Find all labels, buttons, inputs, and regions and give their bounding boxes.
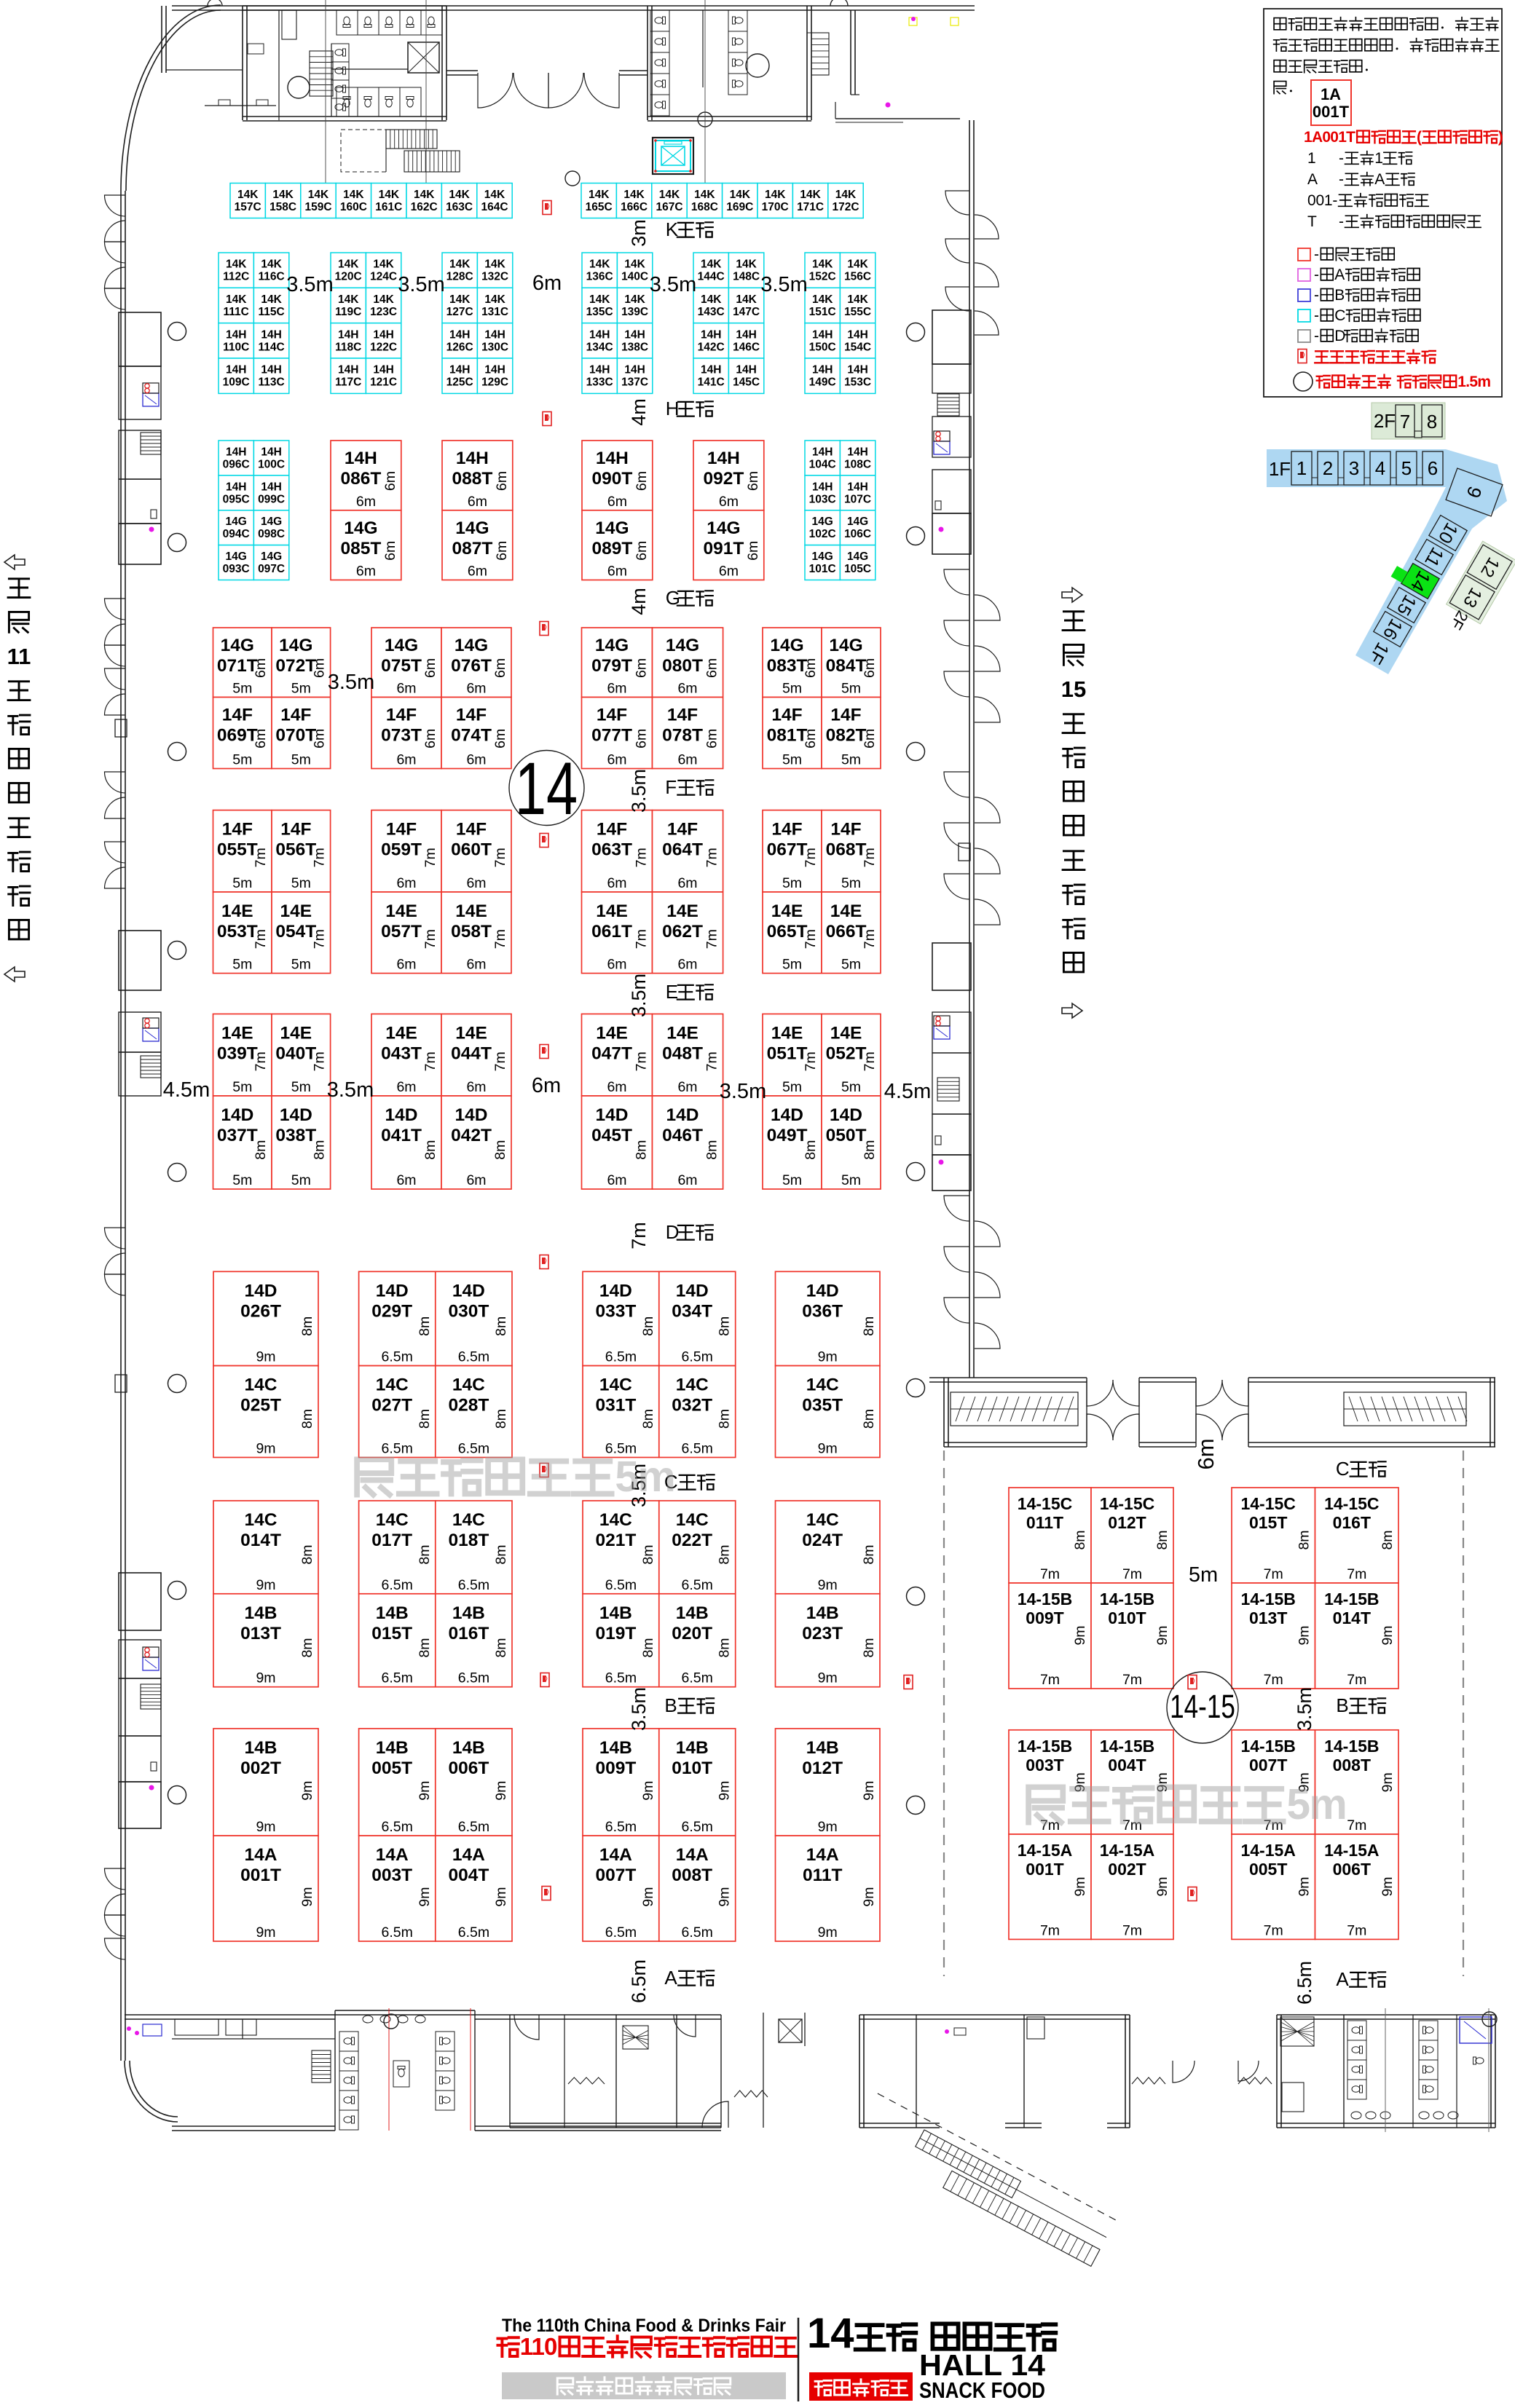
- svg-text:6m: 6m: [532, 272, 562, 295]
- svg-text:8m: 8m: [704, 1140, 720, 1160]
- svg-text:008T: 008T: [1333, 1756, 1371, 1775]
- svg-text:025T: 025T: [240, 1396, 281, 1416]
- svg-text:143C: 143C: [698, 306, 725, 318]
- svg-text:7m: 7m: [253, 929, 269, 949]
- svg-text:115C: 115C: [258, 306, 284, 318]
- svg-text:023T: 023T: [802, 1624, 843, 1643]
- svg-text:6m: 6m: [1193, 1438, 1219, 1469]
- svg-text:8m: 8m: [493, 1545, 509, 1565]
- svg-text:6m: 6m: [677, 1172, 697, 1188]
- svg-text:14D: 14D: [455, 1105, 488, 1125]
- svg-text:6m: 6m: [466, 957, 486, 973]
- svg-text:049T: 049T: [767, 1126, 808, 1145]
- svg-text:111C: 111C: [224, 306, 249, 318]
- svg-text:114C: 114C: [258, 341, 284, 353]
- svg-text:146C: 146C: [733, 341, 760, 353]
- svg-text:5m: 5m: [782, 752, 802, 768]
- svg-text:14F: 14F: [830, 820, 861, 840]
- svg-text:14G: 14G: [595, 636, 629, 655]
- svg-text:14E: 14E: [666, 1024, 699, 1043]
- svg-text:7m: 7m: [1264, 1672, 1283, 1688]
- svg-text:14E: 14E: [455, 901, 487, 921]
- svg-text:14H: 14H: [596, 449, 629, 468]
- svg-text:14C: 14C: [245, 1510, 278, 1530]
- svg-text:14K: 14K: [765, 189, 786, 201]
- svg-text:6m: 6m: [745, 541, 761, 561]
- svg-text:128C: 128C: [446, 271, 473, 283]
- svg-text:5m: 5m: [232, 752, 252, 768]
- svg-text:14E: 14E: [455, 1024, 487, 1043]
- svg-text:14H: 14H: [589, 364, 610, 376]
- svg-text:14K: 14K: [701, 293, 722, 306]
- svg-text:6.5m: 6.5m: [605, 1577, 637, 1593]
- svg-text:14-15A: 14-15A: [1324, 1841, 1379, 1860]
- svg-text:041T: 041T: [381, 1126, 422, 1145]
- svg-text:14E: 14E: [771, 1024, 803, 1043]
- svg-text:14E: 14E: [221, 901, 253, 921]
- svg-text:117C: 117C: [335, 376, 361, 389]
- svg-text:031T: 031T: [595, 1396, 636, 1416]
- svg-text:14B: 14B: [376, 1738, 409, 1758]
- svg-text:5m: 5m: [291, 681, 311, 697]
- svg-text:121C: 121C: [370, 376, 397, 389]
- svg-text:A: A: [1374, 171, 1385, 188]
- svg-text:050T: 050T: [826, 1126, 867, 1145]
- svg-text:055T: 055T: [217, 840, 258, 860]
- svg-text:14K: 14K: [589, 258, 610, 271]
- svg-text:7m: 7m: [1264, 1922, 1283, 1938]
- svg-text:086T: 086T: [340, 469, 381, 489]
- svg-text:6m: 6m: [356, 494, 376, 510]
- svg-text:9m: 9m: [1072, 1876, 1088, 1896]
- svg-text:5m: 5m: [232, 681, 252, 697]
- svg-text:9m: 9m: [717, 1887, 733, 1907]
- svg-text:14B: 14B: [806, 1738, 839, 1758]
- svg-text:6.5m: 6.5m: [1294, 1961, 1315, 2005]
- svg-text:9m: 9m: [1296, 1876, 1313, 1896]
- svg-text:14A: 14A: [676, 1845, 709, 1865]
- svg-text:14H: 14H: [456, 449, 489, 468]
- svg-text:5m: 5m: [615, 1453, 676, 1501]
- svg-text:7m: 7m: [1347, 1672, 1366, 1688]
- svg-text:007T: 007T: [595, 1866, 636, 1885]
- svg-text:130C: 130C: [481, 341, 508, 353]
- svg-text:046T: 046T: [662, 1126, 703, 1145]
- svg-text:14H: 14H: [624, 364, 645, 376]
- svg-text:14E: 14E: [596, 901, 628, 921]
- svg-text:012T: 012T: [802, 1758, 843, 1778]
- svg-text:054T: 054T: [275, 922, 316, 942]
- svg-text:14K: 14K: [847, 293, 868, 306]
- svg-text:072T: 072T: [275, 656, 316, 676]
- svg-text:001T: 001T: [240, 1866, 281, 1885]
- svg-text:149C: 149C: [809, 376, 836, 389]
- svg-text:125C: 125C: [446, 376, 473, 389]
- svg-text:8m: 8m: [253, 1140, 269, 1160]
- svg-text:8m: 8m: [417, 1409, 433, 1429]
- svg-text:014T: 014T: [1333, 1608, 1371, 1627]
- svg-text:14C: 14C: [599, 1510, 632, 1530]
- svg-text:8m: 8m: [299, 1316, 315, 1336]
- svg-text:SNACK FOOD: SNACK FOOD: [919, 2377, 1045, 2403]
- svg-text:14B: 14B: [245, 1603, 278, 1623]
- svg-text:14G: 14G: [279, 636, 312, 655]
- svg-text:137C: 137C: [621, 376, 648, 389]
- svg-text:14H: 14H: [812, 328, 833, 341]
- svg-text:5m: 5m: [232, 1172, 252, 1188]
- svg-text:8m: 8m: [1296, 1530, 1313, 1550]
- svg-text:6m: 6m: [607, 494, 627, 510]
- svg-text:8m: 8m: [312, 1140, 328, 1160]
- svg-text:8m: 8m: [717, 1409, 733, 1429]
- svg-text:14K: 14K: [484, 189, 505, 201]
- svg-text:A: A: [664, 1967, 677, 1989]
- svg-text:5m: 5m: [782, 1172, 802, 1188]
- svg-text:14B: 14B: [676, 1738, 709, 1758]
- svg-text:8m: 8m: [861, 1316, 877, 1336]
- svg-text:14A: 14A: [599, 1845, 632, 1865]
- svg-text:9m: 9m: [861, 1781, 877, 1801]
- svg-text:14-15B: 14-15B: [1018, 1590, 1072, 1608]
- svg-text:14H: 14H: [261, 364, 281, 376]
- svg-text:136C: 136C: [586, 271, 613, 283]
- svg-text:6m: 6m: [607, 875, 626, 891]
- svg-text:8m: 8m: [640, 1409, 656, 1429]
- svg-text:6.5m: 6.5m: [382, 1819, 413, 1835]
- svg-text:14-15C: 14-15C: [1100, 1494, 1154, 1513]
- svg-text:14G: 14G: [344, 518, 377, 538]
- svg-text:8m: 8m: [493, 1638, 509, 1657]
- svg-text:14K: 14K: [261, 293, 282, 306]
- svg-text:8m: 8m: [422, 1140, 438, 1160]
- svg-text:7m: 7m: [1264, 1566, 1283, 1582]
- svg-text:14E: 14E: [221, 1024, 253, 1043]
- svg-text:7m: 7m: [803, 848, 819, 867]
- svg-text:133C: 133C: [586, 376, 613, 389]
- svg-text:020T: 020T: [672, 1624, 712, 1643]
- svg-text:7m: 7m: [704, 1051, 720, 1071]
- svg-text:14K: 14K: [226, 258, 247, 271]
- svg-text:14K: 14K: [589, 189, 610, 201]
- svg-text:027T: 027T: [371, 1396, 412, 1416]
- svg-text:7m: 7m: [1122, 1566, 1142, 1582]
- svg-text:103C: 103C: [809, 493, 836, 505]
- svg-text:071T: 071T: [217, 656, 258, 676]
- svg-text:017T: 017T: [371, 1531, 412, 1550]
- svg-text:004T: 004T: [1108, 1756, 1146, 1775]
- svg-text:033T: 033T: [595, 1301, 636, 1321]
- svg-text:085T: 085T: [340, 539, 381, 558]
- svg-text:14B: 14B: [599, 1603, 632, 1623]
- svg-text:8m: 8m: [640, 1316, 656, 1336]
- svg-text:1: 1: [1307, 150, 1316, 167]
- svg-text:14K: 14K: [373, 258, 394, 271]
- svg-text:14D: 14D: [599, 1281, 632, 1300]
- svg-text:5m: 5m: [841, 681, 861, 697]
- svg-text:6.5m: 6.5m: [605, 1819, 637, 1835]
- svg-text:056T: 056T: [275, 840, 316, 860]
- svg-text:7m: 7m: [704, 848, 720, 867]
- svg-text:016T: 016T: [448, 1624, 489, 1643]
- svg-text:163C: 163C: [446, 201, 473, 213]
- svg-text:14-15B: 14-15B: [1324, 1737, 1379, 1756]
- svg-text:075T: 075T: [381, 656, 422, 676]
- svg-text:094C: 094C: [223, 528, 250, 540]
- svg-text:14G: 14G: [261, 550, 282, 563]
- svg-text:14D: 14D: [676, 1281, 709, 1300]
- svg-text:011T: 011T: [803, 1866, 843, 1885]
- svg-text:14F: 14F: [597, 706, 627, 725]
- svg-text:8m: 8m: [717, 1316, 733, 1336]
- svg-text:5m: 5m: [782, 1079, 802, 1095]
- svg-text:9m: 9m: [1154, 1876, 1170, 1896]
- svg-text:14K: 14K: [484, 258, 505, 271]
- svg-text:171C: 171C: [797, 201, 824, 213]
- svg-text:14B: 14B: [452, 1603, 485, 1623]
- svg-text:14F: 14F: [386, 706, 417, 725]
- svg-text:14D: 14D: [245, 1281, 278, 1300]
- svg-text:053T: 053T: [217, 922, 258, 942]
- svg-text:098C: 098C: [258, 528, 285, 540]
- svg-text:14G: 14G: [455, 518, 489, 538]
- svg-text:8m: 8m: [640, 1638, 656, 1657]
- svg-text:5m: 5m: [841, 1172, 861, 1188]
- svg-text:14F: 14F: [771, 706, 802, 725]
- svg-text:6m: 6m: [634, 471, 650, 491]
- svg-text:6.5m: 6.5m: [458, 1441, 489, 1457]
- svg-text:14H: 14H: [847, 481, 867, 493]
- svg-text:6m: 6m: [745, 471, 761, 491]
- svg-text:14K: 14K: [449, 293, 471, 306]
- svg-text:8m: 8m: [1072, 1530, 1088, 1550]
- svg-text:14D: 14D: [596, 1105, 629, 1125]
- svg-text:14H: 14H: [701, 328, 721, 341]
- svg-text:14C: 14C: [376, 1510, 409, 1530]
- svg-text:6.5m: 6.5m: [382, 1349, 413, 1365]
- svg-text:4.5m: 4.5m: [163, 1078, 210, 1102]
- svg-text:089T: 089T: [591, 539, 632, 558]
- svg-text:024T: 024T: [802, 1531, 843, 1550]
- svg-text:6m: 6m: [607, 564, 627, 580]
- svg-text:A: A: [1307, 171, 1318, 188]
- svg-text:028T: 028T: [448, 1396, 489, 1416]
- svg-text:14H: 14H: [226, 481, 246, 493]
- svg-text:3.5m: 3.5m: [650, 273, 696, 296]
- svg-text:14K: 14K: [338, 258, 359, 271]
- svg-text:-: -: [1339, 150, 1344, 167]
- svg-text:5: 5: [1401, 457, 1412, 479]
- svg-text:012T: 012T: [1108, 1513, 1146, 1532]
- svg-text:6.5m: 6.5m: [682, 1819, 713, 1835]
- svg-text:14D: 14D: [666, 1105, 699, 1125]
- svg-text:138C: 138C: [621, 341, 648, 353]
- svg-text:095C: 095C: [223, 493, 250, 505]
- svg-text:-: -: [1314, 328, 1319, 344]
- svg-text:14K: 14K: [730, 189, 751, 201]
- svg-text:9m: 9m: [1072, 1625, 1088, 1645]
- svg-text:6.5m: 6.5m: [382, 1441, 413, 1457]
- svg-text:14H: 14H: [701, 364, 721, 376]
- svg-text:6m: 6m: [634, 541, 650, 561]
- svg-text:7m: 7m: [492, 1051, 508, 1071]
- svg-text:6m: 6m: [466, 1172, 486, 1188]
- svg-text:6m: 6m: [356, 564, 376, 580]
- svg-text:14H: 14H: [261, 481, 281, 493]
- svg-text:14E: 14E: [280, 901, 312, 921]
- svg-text:129C: 129C: [481, 376, 508, 389]
- svg-text:3.5m: 3.5m: [720, 1080, 766, 1103]
- svg-text:040T: 040T: [275, 1044, 316, 1064]
- svg-text:6.5m: 6.5m: [605, 1349, 637, 1365]
- svg-text:048T: 048T: [662, 1044, 703, 1064]
- svg-text:14G: 14G: [812, 516, 833, 528]
- svg-text:7m: 7m: [1040, 1566, 1060, 1582]
- svg-text:5m: 5m: [841, 875, 861, 891]
- svg-text:087T: 087T: [452, 539, 492, 558]
- svg-text:077T: 077T: [591, 726, 632, 746]
- svg-text:14E: 14E: [666, 901, 699, 921]
- svg-text:5m: 5m: [291, 957, 311, 973]
- svg-text:7m: 7m: [1347, 1922, 1366, 1938]
- svg-text:3.5m: 3.5m: [628, 1687, 650, 1731]
- svg-text:142C: 142C: [698, 341, 725, 353]
- svg-text:14B: 14B: [806, 1603, 839, 1623]
- svg-text:7m: 7m: [1040, 1672, 1060, 1688]
- svg-text:006T: 006T: [448, 1758, 489, 1778]
- svg-text:6.5m: 6.5m: [458, 1819, 489, 1835]
- svg-text:172C: 172C: [832, 201, 859, 213]
- svg-text:9m: 9m: [256, 1349, 275, 1365]
- svg-text:7m: 7m: [253, 848, 269, 867]
- svg-text:6m: 6m: [719, 564, 739, 580]
- svg-text:14F: 14F: [771, 820, 802, 840]
- svg-text:007T: 007T: [1249, 1756, 1287, 1775]
- svg-text:14G: 14G: [707, 518, 740, 538]
- svg-text:14K: 14K: [449, 258, 471, 271]
- svg-text:9m: 9m: [818, 1925, 838, 1941]
- svg-text:14H: 14H: [226, 364, 246, 376]
- svg-text:9m: 9m: [1380, 1876, 1396, 1896]
- svg-text:5m: 5m: [1286, 1780, 1347, 1828]
- svg-text:14G: 14G: [847, 550, 868, 563]
- svg-text:6m: 6m: [396, 752, 416, 768]
- svg-text:11: 11: [7, 644, 31, 669]
- svg-text:6m: 6m: [396, 875, 416, 891]
- svg-text:14G: 14G: [226, 550, 247, 563]
- svg-text:6.5m: 6.5m: [605, 1925, 637, 1941]
- svg-text:14G: 14G: [829, 636, 862, 655]
- svg-text:14A: 14A: [806, 1845, 839, 1865]
- svg-text:126C: 126C: [446, 341, 473, 353]
- svg-text:14K: 14K: [812, 293, 833, 306]
- svg-text:14K: 14K: [414, 189, 435, 201]
- svg-text:078T: 078T: [662, 726, 703, 746]
- svg-text:14-15A: 14-15A: [1240, 1841, 1295, 1860]
- svg-text:7m: 7m: [862, 848, 878, 867]
- svg-text:084T: 084T: [826, 656, 867, 676]
- svg-text:147C: 147C: [733, 306, 760, 318]
- svg-text:9m: 9m: [256, 1577, 275, 1593]
- svg-text:8m: 8m: [861, 1545, 877, 1565]
- svg-text:14G: 14G: [595, 518, 629, 538]
- svg-text:14K: 14K: [237, 189, 259, 201]
- svg-text:14H: 14H: [449, 328, 470, 341]
- svg-text:106C: 106C: [844, 528, 871, 540]
- svg-text:153C: 153C: [844, 376, 871, 389]
- svg-text:7m: 7m: [634, 1051, 650, 1071]
- svg-text:4: 4: [1375, 457, 1385, 479]
- svg-text:127C: 127C: [446, 306, 473, 318]
- svg-text:14K: 14K: [800, 189, 821, 201]
- svg-text:001T: 001T: [1313, 103, 1350, 121]
- svg-text:14C: 14C: [245, 1375, 278, 1395]
- svg-text:073T: 073T: [381, 726, 422, 746]
- svg-text:168C: 168C: [691, 201, 718, 213]
- svg-text:6m: 6m: [468, 494, 487, 510]
- svg-text:3.5m: 3.5m: [286, 273, 333, 296]
- svg-text:14C: 14C: [676, 1510, 709, 1530]
- svg-text:039T: 039T: [217, 1044, 258, 1064]
- svg-text:14C: 14C: [452, 1375, 485, 1395]
- svg-text:14F: 14F: [222, 706, 253, 725]
- svg-text:14H: 14H: [812, 364, 833, 376]
- svg-text:14H: 14H: [484, 328, 505, 341]
- svg-text:14K: 14K: [736, 293, 757, 306]
- svg-text:043T: 043T: [381, 1044, 422, 1064]
- svg-text:9m: 9m: [1380, 1772, 1396, 1792]
- svg-text:058T: 058T: [451, 922, 492, 942]
- svg-text:9m: 9m: [818, 1819, 838, 1835]
- svg-text:8: 8: [1427, 411, 1437, 433]
- svg-text:156C: 156C: [844, 271, 871, 283]
- svg-text:001T: 001T: [1026, 1860, 1063, 1879]
- svg-text:14H: 14H: [707, 449, 740, 468]
- svg-text:F: F: [665, 776, 677, 798]
- svg-text:14H: 14H: [589, 328, 610, 341]
- svg-text:5m: 5m: [782, 681, 802, 697]
- svg-text:064T: 064T: [662, 840, 703, 860]
- svg-text:14H: 14H: [484, 364, 505, 376]
- svg-text:9m: 9m: [493, 1781, 509, 1801]
- svg-text:6m: 6m: [492, 658, 508, 678]
- svg-text:14K: 14K: [338, 293, 359, 306]
- svg-text:097C: 097C: [258, 563, 285, 575]
- svg-text:14E: 14E: [830, 1024, 862, 1043]
- svg-text:7m: 7m: [312, 929, 328, 949]
- svg-text:14-15A: 14-15A: [1018, 1841, 1072, 1860]
- svg-text:7m: 7m: [312, 1051, 328, 1071]
- svg-text:5m: 5m: [782, 957, 802, 973]
- svg-text:14D: 14D: [771, 1105, 803, 1125]
- svg-text:14K: 14K: [226, 293, 247, 306]
- svg-text:6.5m: 6.5m: [458, 1925, 489, 1941]
- svg-text:6: 6: [1428, 457, 1438, 479]
- svg-text:6m: 6m: [422, 658, 438, 678]
- svg-text:165C: 165C: [586, 201, 613, 213]
- svg-text:6m: 6m: [492, 729, 508, 749]
- svg-text:8m: 8m: [299, 1638, 315, 1657]
- svg-text:6m: 6m: [312, 729, 328, 749]
- svg-text:14E: 14E: [596, 1024, 628, 1043]
- svg-text:14K: 14K: [308, 189, 329, 201]
- svg-text:14H: 14H: [847, 446, 867, 459]
- svg-text:14E: 14E: [385, 1024, 417, 1043]
- svg-text:082T: 082T: [826, 726, 867, 746]
- svg-text:026T: 026T: [240, 1301, 281, 1321]
- svg-text:14E: 14E: [385, 901, 417, 921]
- svg-text:124C: 124C: [370, 271, 397, 283]
- svg-text:092T: 092T: [703, 469, 744, 489]
